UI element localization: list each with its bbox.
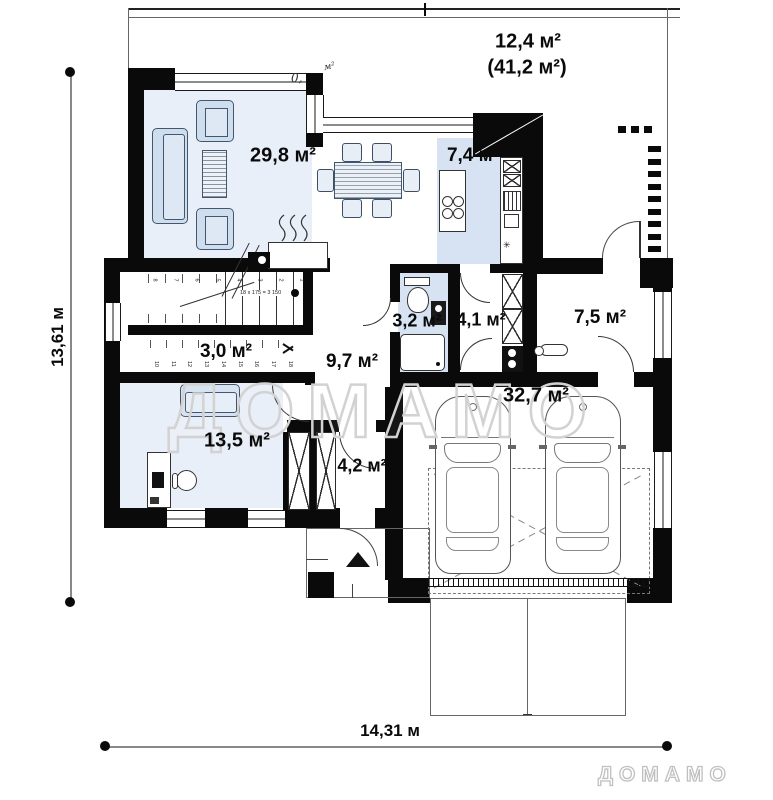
stairs-step-numbers-up: 8765 4321 [152,276,302,284]
wardrobe [502,274,523,309]
dimension-dot [662,741,672,751]
boundary-dash [648,234,661,240]
terrace-edge [667,8,668,258]
terrace-edge [128,8,129,68]
driveway [430,598,626,716]
wall [375,508,403,528]
stairs-treads-dashed [148,314,225,323]
wall [128,90,144,258]
boundary-dash [648,196,661,202]
boundary-dash [644,126,652,133]
door-arc [598,336,634,372]
wall [104,258,120,508]
boundary-dash [648,146,661,152]
toilet-tank [404,277,430,286]
room-label-vestibule: 4,2 м² [337,456,386,477]
door-arc [602,221,639,258]
dimension-dot [100,741,110,751]
room-label-hall: 9,7 м² [326,351,378,373]
terrace-edge [128,17,680,18]
dimension-dot [65,67,75,77]
wall [285,508,340,528]
armchair [196,100,234,142]
armchair [196,208,234,250]
wall [390,264,460,273]
fridge-icon [503,160,521,173]
boundary-dash [648,184,661,190]
porch-column [308,572,334,598]
flue-note: 0, [291,71,302,85]
dining-table [334,162,402,199]
fridge-icon [503,174,521,187]
boundary-dash [648,209,661,215]
window [323,117,473,133]
wall [390,268,400,302]
wall [128,325,305,335]
wall [653,528,672,580]
brand-logo: ДОМАМО [598,763,732,787]
porch-mark [306,559,328,560]
boundary-dash [648,159,661,165]
wall [634,372,672,387]
sofa [152,128,188,224]
dining-chair [403,169,420,192]
wall [490,264,523,273]
window [167,510,205,528]
terrace-area-label: 12,4 м² [495,31,561,54]
dining-chair [317,169,334,192]
room-label-utility: 7,5 м² [574,307,626,329]
coffee-table [202,150,227,198]
wall [104,508,167,528]
window [175,73,306,91]
sink-symbol: ✳ [503,240,519,254]
boundary-dash [631,126,639,133]
boundary-dash [648,171,661,177]
wall [523,157,543,258]
stairs-post-dot [291,289,299,297]
driveway-center-line [527,598,528,716]
room-label-kitchen: 7,4 м² [447,145,499,167]
floor-plan-canvas: 12,4 м² (41,2 м²) 0, м² [0,0,773,800]
stove-icon [503,191,521,211]
radiator [540,344,568,356]
window [654,292,672,358]
boundary-dash [648,221,661,227]
room-label-garage: 32,7 м² [503,385,569,408]
office-chair-back [172,473,178,489]
door-arc [460,273,490,303]
office-chair [176,470,197,491]
cooktop-burner [453,196,464,207]
window [654,452,672,528]
door-leaf [639,221,641,258]
dimension-line-horizontal [105,746,667,748]
fireplace-hearth [268,242,328,269]
dimension-line-vertical [70,72,72,602]
room-label-corridor: 4,1 м² [456,310,505,331]
dimension-label-vertical: 13,61 м [48,307,68,367]
dimension-dot [65,597,75,607]
room-label-storage: 3,0 м² [200,341,252,363]
cooktop-burner [442,196,453,207]
stairs-formula: 18 x 175 = 3 150 [240,290,281,296]
driveway-tick [523,714,532,715]
room-label-bathroom: 3,2 м² [392,311,441,332]
window [105,303,121,341]
garage-door [428,578,650,587]
heat-waves-icon [277,210,311,243]
oven-icon [504,214,519,228]
fireplace-stove-ring [258,256,266,264]
porch-mark [352,584,353,598]
toilet-bowl [407,287,429,313]
monitor [152,472,164,488]
flue-note-unit: м² [323,61,336,73]
desk-item [150,497,159,504]
dimension-label-horizontal: 14,31 м [360,721,420,741]
cooktop-burner [453,208,464,219]
dining-chair [342,143,362,162]
dining-chair [342,199,362,218]
room-label-office: 13,5 м² [204,430,270,453]
boiler-dial [508,349,516,357]
wall [653,258,672,292]
wall [390,332,400,372]
room-label-living: 29,8 м² [250,145,316,168]
cooktop-burner [442,208,453,219]
chimney-block [306,73,323,95]
radiator-valve [534,346,544,356]
terrace-edge [128,8,680,10]
shower-drain [436,362,440,366]
window [306,95,324,133]
door-arc [460,338,492,370]
terrace-total-area-label: (41,2 м²) [487,57,566,80]
window [248,510,285,528]
wall [205,508,248,528]
door-arc [363,298,391,326]
boundary-dash [618,126,626,133]
terrace-tick [424,3,426,16]
boundary-dash [648,246,661,252]
dining-chair [372,199,392,218]
wall [128,68,175,90]
dining-chair [372,143,392,162]
boiler-dial [508,360,516,368]
